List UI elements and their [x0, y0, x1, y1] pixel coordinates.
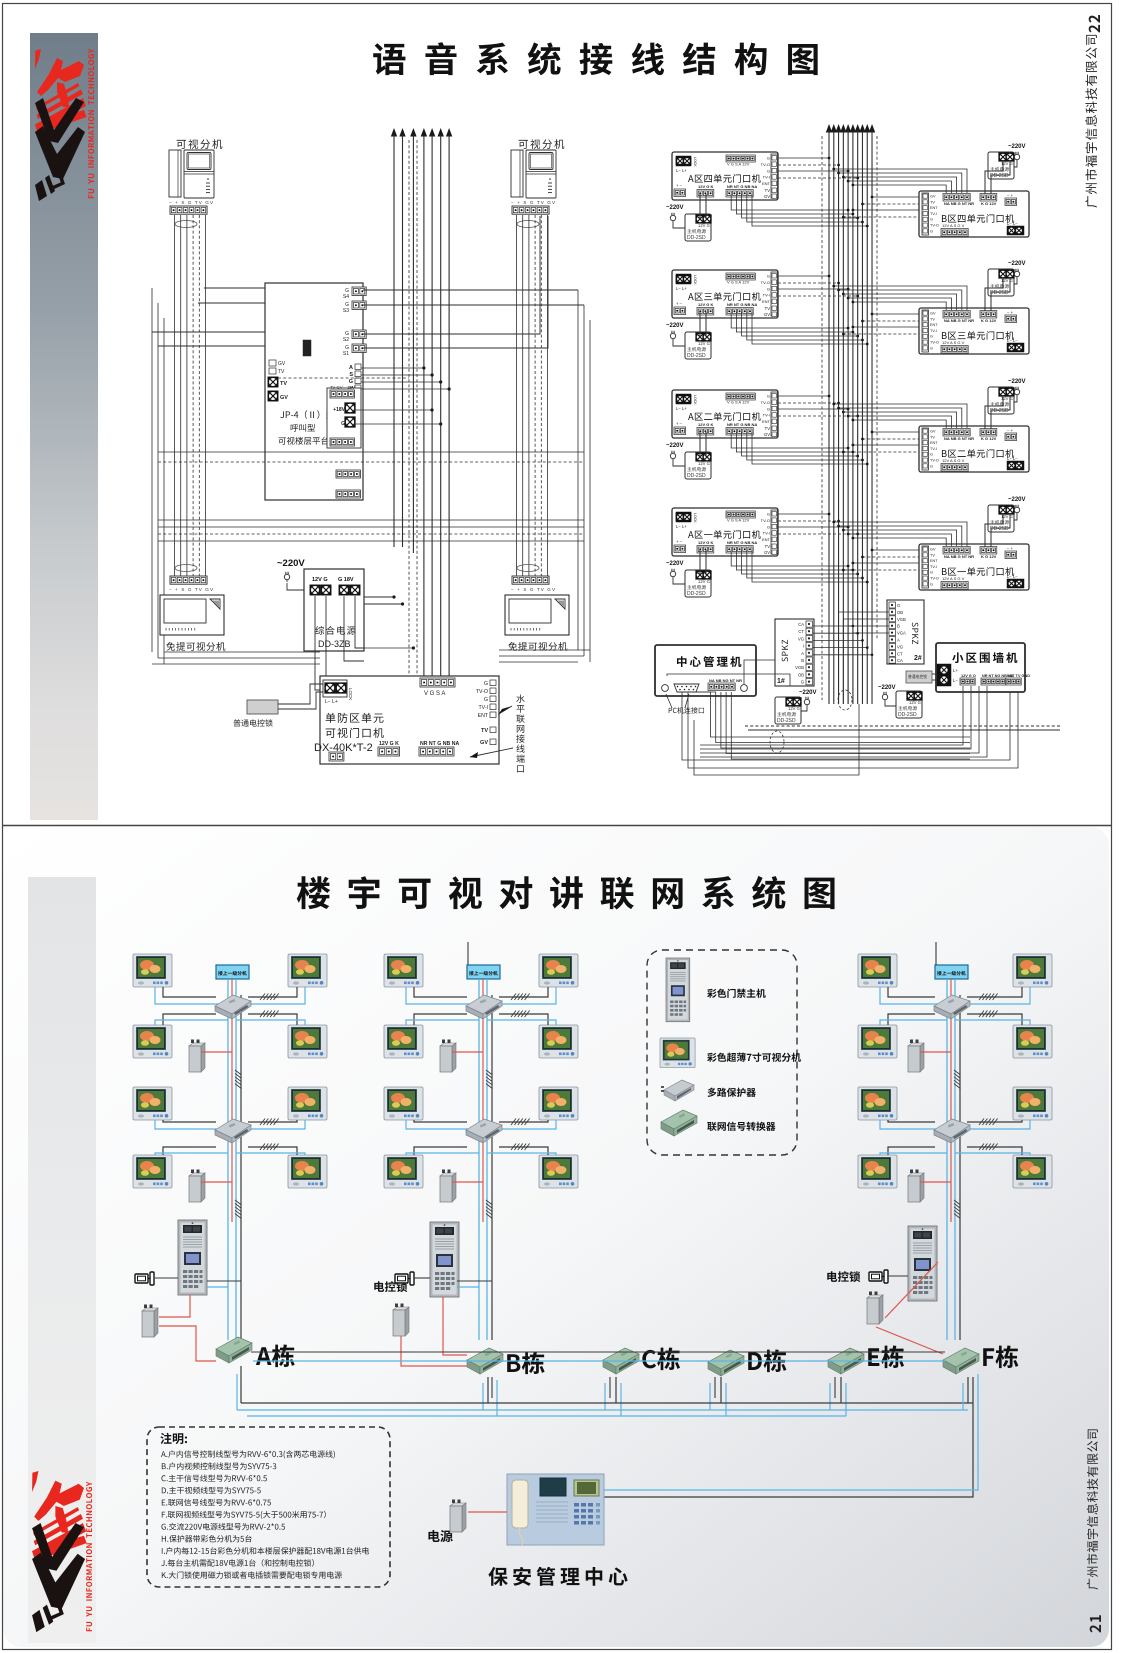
- svg-text:NR NT G NB NA: NR NT G NB NA: [727, 540, 757, 545]
- svg-text:12V A S G V: 12V A S G V: [942, 458, 965, 463]
- svg-text:ENT: ENT: [762, 537, 771, 542]
- svg-text:A: A: [801, 651, 804, 656]
- svg-text:TV: TV: [765, 188, 771, 193]
- svg-text:DD-3ZB: DD-3ZB: [318, 639, 351, 649]
- svg-text:LOCK: LOCK: [693, 275, 697, 285]
- svg-text:TV: TV: [765, 306, 771, 311]
- svg-text:TV: TV: [930, 553, 935, 557]
- svg-text:NA NB G NT NR: NA NB G NT NR: [944, 554, 974, 559]
- svg-text:A: A: [349, 365, 353, 371]
- svg-text:CA: CA: [897, 658, 903, 663]
- svg-text:~220V: ~220V: [666, 561, 684, 567]
- svg-text:− +: − +: [1007, 546, 1014, 551]
- svg-text:GV: GV: [764, 432, 770, 437]
- svg-text:+ −: + −: [676, 301, 683, 306]
- svg-text:TV-O: TV-O: [930, 341, 939, 345]
- svg-text:L− L+: L− L+: [676, 524, 687, 529]
- svg-text:VGB: VGB: [897, 617, 906, 622]
- svg-text:G: G: [930, 218, 933, 222]
- svg-text:ENT: ENT: [930, 559, 938, 563]
- svg-text:G: G: [930, 571, 933, 575]
- svg-text:G: G: [767, 286, 770, 291]
- svg-text:G: G: [930, 582, 933, 586]
- svg-text:2#: 2#: [914, 655, 922, 662]
- svg-text:TV: TV: [930, 435, 935, 439]
- svg-text:NR NT G NB NA: NR NT G NB NA: [420, 741, 459, 747]
- svg-text:L− L−: L− L−: [1007, 338, 1018, 343]
- svg-text:TV-I: TV-I: [763, 531, 770, 536]
- svg-text:S3: S3: [343, 308, 349, 314]
- svg-text:DD-2SD: DD-2SD: [990, 408, 1009, 414]
- svg-text:TV-O: TV-O: [476, 689, 488, 695]
- svg-text:V G S A 12V: V G S A 12V: [727, 162, 750, 167]
- svg-text:ENT: ENT: [930, 206, 938, 210]
- svg-text:− + S G TV GV: − + S G TV GV: [511, 587, 556, 592]
- svg-text:G: G: [767, 512, 770, 517]
- svg-text:S4: S4: [343, 294, 349, 300]
- svg-text:G: G: [930, 335, 933, 339]
- svg-text:L−: L−: [953, 678, 958, 683]
- svg-text:G: G: [930, 464, 933, 468]
- svg-text:G: G: [897, 603, 900, 608]
- svg-text:12V G K: 12V G K: [379, 741, 399, 747]
- svg-text:CT: CT: [897, 651, 903, 656]
- svg-text:12V G K: 12V G K: [698, 184, 713, 189]
- svg-text:~220V: ~220V: [1008, 144, 1026, 150]
- svg-text:− + S G TV GV: − + S G TV GV: [169, 587, 214, 592]
- svg-text:TV: TV: [765, 426, 771, 431]
- svg-text:GV: GV: [930, 195, 936, 199]
- svg-text:K G 12V: K G 12V: [981, 436, 997, 441]
- svg-text:ENT: ENT: [762, 419, 771, 424]
- svg-text:NA NB NG NT NR: NA NB NG NT NR: [709, 678, 742, 683]
- svg-text:L− L+: L− L+: [676, 168, 687, 173]
- svg-text:K G 12V: K G 12V: [981, 201, 997, 206]
- svg-text:12V G: 12V G: [698, 223, 710, 228]
- svg-text:DD-2SD: DD-2SD: [687, 353, 706, 359]
- svg-text:TV-O: TV-O: [761, 280, 770, 285]
- svg-text:DD-2SD: DD-2SD: [990, 290, 1009, 296]
- svg-text:12V G: 12V G: [698, 579, 710, 584]
- svg-text:12V G: 12V G: [909, 700, 921, 705]
- svg-text:~220V: ~220V: [1008, 261, 1026, 267]
- svg-text:S: S: [349, 372, 353, 378]
- svg-text:TV: TV: [280, 381, 287, 387]
- svg-text:+18V: +18V: [333, 407, 345, 413]
- svg-text:TV-O: TV-O: [930, 577, 939, 581]
- svg-text:TV-I: TV-I: [763, 293, 770, 298]
- svg-text:NA NB G NT NR: NA NB G NT NR: [944, 436, 974, 441]
- svg-text:GV: GV: [278, 361, 286, 367]
- svg-text:G: G: [484, 697, 488, 703]
- svg-text:TV-I: TV-I: [930, 447, 937, 451]
- svg-text:NR NT G NB NA: NR NT G NB NA: [727, 302, 757, 307]
- svg-text:G: G: [484, 681, 488, 687]
- svg-text:1#: 1#: [777, 678, 785, 685]
- svg-text:V G S A 12V: V G S A 12V: [727, 518, 750, 523]
- svg-text:CA: CA: [798, 622, 804, 627]
- svg-text:S1: S1: [343, 351, 349, 357]
- svg-text:GV: GV: [764, 194, 770, 199]
- svg-text:12V A S G V: 12V A S G V: [942, 576, 965, 581]
- svg-text:S2: S2: [343, 337, 349, 343]
- svg-text:普通电控锁: 普通电控锁: [908, 674, 927, 679]
- svg-text:DD-2SD: DD-2SD: [898, 712, 917, 718]
- svg-text:GV: GV: [930, 312, 936, 316]
- svg-text:A: A: [897, 638, 900, 643]
- svg-text:LOCK: LOCK: [693, 157, 697, 167]
- svg-text:~220V: ~220V: [666, 443, 684, 449]
- svg-text:ENT: ENT: [762, 299, 771, 304]
- svg-text:B: B: [897, 624, 900, 629]
- svg-text:12V G: 12V G: [312, 577, 328, 583]
- svg-text:GV: GV: [764, 312, 770, 317]
- svg-text:~220V: ~220V: [666, 205, 684, 211]
- svg-text:TV GV − 18V: TV GV − 18V: [330, 385, 355, 390]
- svg-text:TV-I: TV-I: [930, 329, 937, 333]
- svg-text:GV: GV: [764, 550, 770, 555]
- svg-text:+ −: + −: [676, 183, 683, 188]
- svg-text:LOCK: LOCK: [348, 688, 353, 700]
- svg-text:GV: GV: [280, 395, 288, 401]
- svg-text:CT: CT: [798, 629, 804, 634]
- svg-text:NA NB G NT NR: NA NB G NT NR: [944, 201, 974, 206]
- svg-text:K G 12V: K G 12V: [981, 554, 997, 559]
- svg-text:12V A S G V: 12V A S G V: [942, 223, 965, 228]
- svg-text:L− L+: L− L+: [325, 699, 338, 705]
- svg-text:G: G: [801, 680, 804, 685]
- svg-text:B: B: [801, 658, 804, 663]
- svg-text:~220V: ~220V: [1008, 379, 1026, 385]
- svg-text:~220V: ~220V: [799, 690, 817, 696]
- svg-text:V G S A 12V: V G S A 12V: [727, 400, 750, 405]
- svg-text:DD-2SD: DD-2SD: [687, 473, 706, 479]
- svg-text:12V G: 12V G: [698, 341, 710, 346]
- svg-text:12V G: 12V G: [698, 461, 710, 466]
- svg-text:G: G: [930, 453, 933, 457]
- svg-text:− + S G TV GV: − + S G TV GV: [511, 200, 556, 205]
- svg-text:GV: GV: [480, 740, 488, 746]
- svg-text:~220V: ~220V: [878, 685, 896, 691]
- svg-text:NR NT G NB NA: NR NT G NB NA: [727, 422, 757, 427]
- svg-text:ENT: ENT: [762, 181, 771, 186]
- svg-text:TV: TV: [481, 728, 488, 734]
- svg-text:G 18V: G 18V: [338, 577, 354, 583]
- svg-text:VGB: VGB: [795, 665, 804, 670]
- svg-text:G: G: [767, 156, 770, 161]
- svg-text:12V G K: 12V G K: [698, 540, 713, 545]
- svg-text:NET TV GND: NET TV GND: [1007, 674, 1030, 678]
- svg-text:L+: L+: [953, 668, 958, 673]
- svg-text:TV: TV: [765, 544, 771, 549]
- svg-text:~220V: ~220V: [277, 558, 305, 569]
- svg-text:OB: OB: [798, 672, 804, 677]
- svg-text:+ −: + −: [676, 421, 683, 426]
- svg-text:− +: − +: [1007, 428, 1014, 433]
- svg-text:ENT: ENT: [930, 441, 938, 445]
- svg-text:TV: TV: [278, 369, 285, 375]
- svg-text:12V G: 12V G: [788, 706, 800, 711]
- svg-text:12V G O: 12V G O: [961, 674, 976, 678]
- svg-text:I: I: [803, 644, 804, 649]
- svg-text:LOCK: LOCK: [693, 395, 697, 405]
- svg-text:TV-I: TV-I: [478, 705, 488, 711]
- svg-text:V G S A 12V: V G S A 12V: [727, 280, 750, 285]
- svg-text:+ −: + −: [676, 539, 683, 544]
- svg-text:VG: VG: [798, 636, 804, 641]
- svg-text:~220V: ~220V: [1008, 497, 1026, 503]
- svg-text:G: G: [767, 274, 770, 279]
- svg-text:TV-O: TV-O: [761, 518, 770, 523]
- svg-text:TV: TV: [930, 200, 935, 204]
- svg-text:DD-2SD: DD-2SD: [687, 591, 706, 597]
- svg-text:DD-2SD: DD-2SD: [777, 718, 796, 724]
- svg-text:TV-I: TV-I: [763, 175, 770, 180]
- svg-text:12V G K: 12V G K: [698, 302, 713, 307]
- svg-text:G: G: [930, 229, 933, 233]
- svg-text:NR NT G NB NA: NR NT G NB NA: [727, 184, 757, 189]
- svg-text:TV-I: TV-I: [763, 413, 770, 418]
- svg-text:L− L+: L− L+: [676, 286, 687, 291]
- svg-text:ENT: ENT: [930, 323, 938, 327]
- svg-text:ENT: ENT: [478, 713, 489, 719]
- svg-text:G: G: [767, 394, 770, 399]
- svg-text:GV: GV: [930, 430, 936, 434]
- svg-text:LOCK: LOCK: [693, 513, 697, 523]
- svg-text:− +: − +: [1007, 310, 1014, 315]
- svg-text:G: G: [767, 406, 770, 411]
- svg-text:L− L−: L− L−: [1007, 456, 1018, 461]
- svg-text:GV: GV: [930, 548, 936, 552]
- svg-text:− + S G TV GV: − + S G TV GV: [169, 200, 214, 205]
- svg-text:V G S A: V G S A: [424, 691, 445, 697]
- svg-text:DD-2SD: DD-2SD: [990, 526, 1009, 532]
- svg-text:DD-2SD: DD-2SD: [687, 235, 706, 241]
- svg-text:G: G: [767, 168, 770, 173]
- svg-text:TV-O: TV-O: [930, 459, 939, 463]
- svg-text:TV-I: TV-I: [930, 212, 937, 216]
- svg-text:VG: VG: [897, 644, 903, 649]
- svg-text:TV-O: TV-O: [930, 224, 939, 228]
- svg-text:TV: TV: [930, 317, 935, 321]
- svg-text:TV-I: TV-I: [930, 565, 937, 569]
- svg-text:VGA: VGA: [897, 631, 906, 636]
- svg-text:L− L+: L− L+: [676, 406, 687, 411]
- svg-text:TV-O: TV-O: [761, 162, 770, 167]
- svg-text:12V A S G V: 12V A S G V: [942, 340, 965, 345]
- svg-text:DD-2SD: DD-2SD: [990, 173, 1009, 179]
- svg-text:OB: OB: [897, 610, 903, 615]
- svg-text:L− L−: L− L−: [1007, 221, 1018, 226]
- svg-text:G: G: [930, 346, 933, 350]
- svg-text:~220V: ~220V: [666, 323, 684, 329]
- svg-text:L− L−: L− L−: [1007, 574, 1018, 579]
- svg-text:G: G: [341, 421, 345, 427]
- svg-text:− +: − +: [1007, 193, 1014, 198]
- svg-text:NA NB G NT NR: NA NB G NT NR: [944, 318, 974, 323]
- svg-text:K G 12V: K G 12V: [981, 318, 997, 323]
- svg-text:G: G: [767, 524, 770, 529]
- svg-text:TV-O: TV-O: [761, 400, 770, 405]
- svg-text:12V G K: 12V G K: [698, 422, 713, 427]
